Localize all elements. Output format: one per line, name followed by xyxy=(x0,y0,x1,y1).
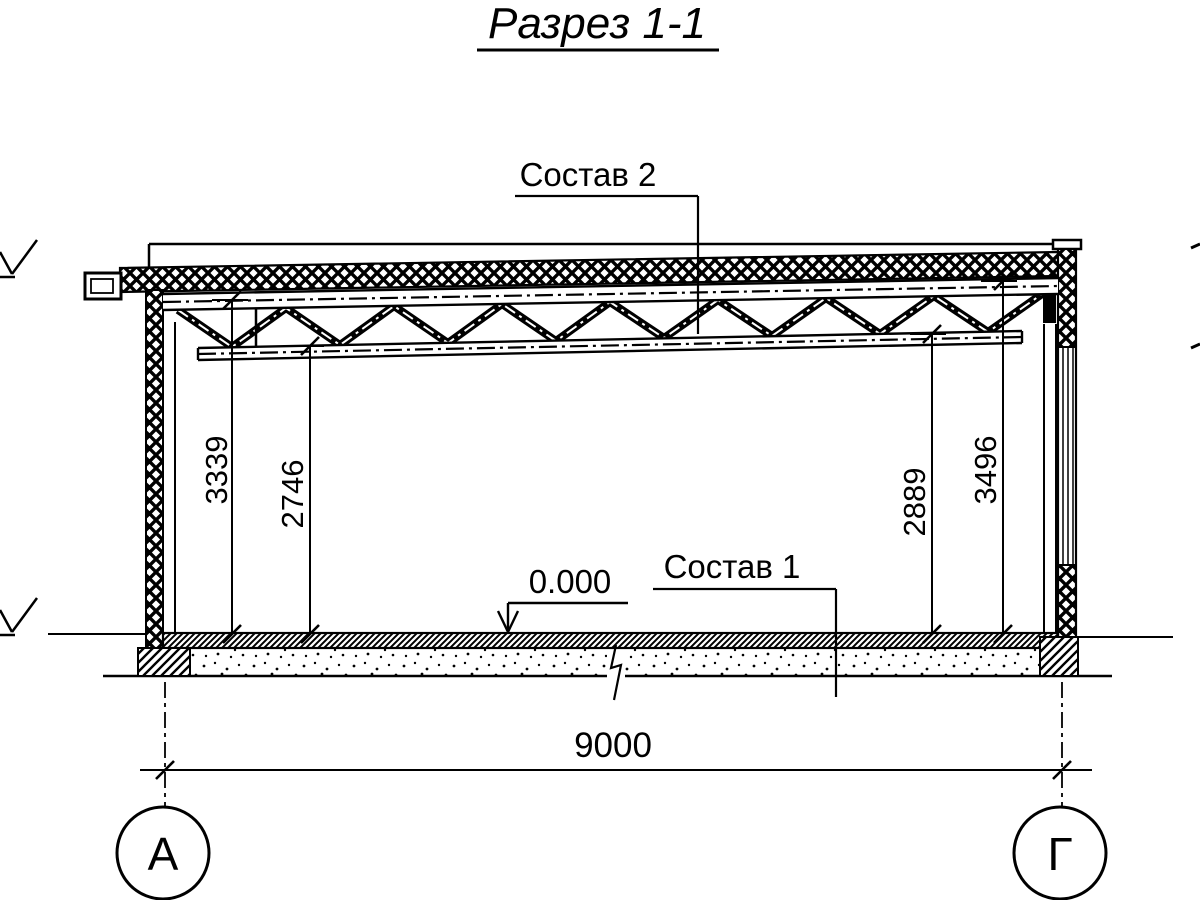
axis-label-g: Г xyxy=(1048,828,1073,880)
dim-text-3496: 3496 xyxy=(968,436,1003,505)
edge-mark-lower-right xyxy=(1191,344,1200,348)
right-wall-sill xyxy=(1058,565,1076,637)
level-arrow xyxy=(498,603,628,632)
drawing-sheet: Разрез 1-1 xyxy=(0,0,1200,900)
dim-text-3339: 3339 xyxy=(199,436,234,505)
eave-fascia-inner xyxy=(91,279,113,293)
label-floor-composition: Состав 1 xyxy=(664,548,801,585)
level-label: 0.000 xyxy=(529,563,612,600)
dim-text-2746: 2746 xyxy=(275,460,310,529)
slab-break-line xyxy=(607,645,625,700)
dim-text-2889: 2889 xyxy=(897,468,932,537)
axis-label-a: А xyxy=(148,828,179,880)
foundation-left xyxy=(138,648,190,676)
drawing-title: Разрез 1-1 xyxy=(488,0,706,48)
left-wall xyxy=(146,290,163,648)
foundation-right xyxy=(1040,637,1078,676)
span-dim-text: 9000 xyxy=(574,726,652,765)
level-mark-lower-left-icon xyxy=(0,598,37,635)
right-wall-parapet xyxy=(1058,249,1076,347)
label-roof-composition: Состав 2 xyxy=(520,156,657,193)
right-wall-window xyxy=(1063,347,1073,565)
level-mark-upper-left-icon xyxy=(0,240,37,277)
section-drawing: Разрез 1-1 xyxy=(0,0,1200,900)
edge-mark-upper-right xyxy=(1191,244,1200,248)
parapet-cap xyxy=(1053,240,1081,249)
